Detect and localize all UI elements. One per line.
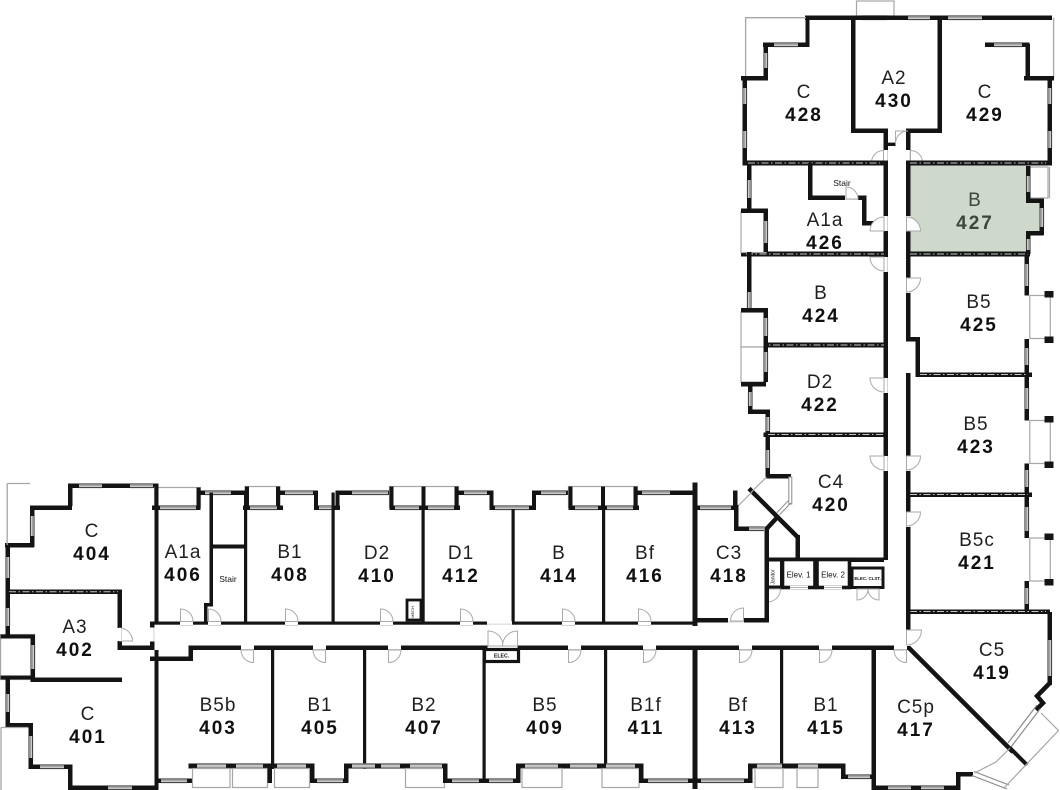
svg-text:413: 413 — [719, 718, 757, 739]
svg-text:Elev. 2: Elev. 2 — [821, 571, 845, 580]
svg-text:402: 402 — [56, 640, 94, 661]
svg-text:D2: D2 — [807, 372, 833, 393]
svg-text:A1a: A1a — [807, 210, 844, 231]
svg-text:426: 426 — [806, 233, 844, 254]
svg-text:Stair: Stair — [833, 178, 851, 188]
svg-text:416: 416 — [626, 566, 664, 587]
svg-text:B1: B1 — [813, 695, 838, 716]
svg-text:C: C — [797, 82, 812, 103]
svg-text:B5b: B5b — [200, 695, 237, 716]
svg-text:422: 422 — [801, 395, 839, 416]
svg-text:411: 411 — [628, 718, 665, 739]
svg-text:401: 401 — [69, 727, 107, 748]
svg-text:B5: B5 — [532, 695, 557, 716]
svg-text:430: 430 — [875, 91, 913, 112]
svg-text:412: 412 — [442, 566, 480, 587]
svg-text:D1: D1 — [448, 543, 474, 564]
svg-text:MECH: MECH — [410, 606, 415, 618]
svg-text:C4: C4 — [818, 472, 844, 493]
svg-text:419: 419 — [973, 663, 1011, 684]
svg-text:429: 429 — [966, 105, 1004, 126]
svg-text:B: B — [814, 283, 828, 304]
svg-text:407: 407 — [405, 718, 443, 739]
svg-text:B: B — [552, 543, 566, 564]
svg-text:424: 424 — [802, 306, 840, 327]
svg-text:414: 414 — [540, 566, 578, 587]
svg-text:D2: D2 — [364, 543, 390, 564]
svg-text:C5p: C5p — [897, 697, 935, 718]
svg-text:403: 403 — [199, 718, 237, 739]
svg-text:B2: B2 — [411, 695, 436, 716]
svg-text:A2: A2 — [881, 68, 906, 89]
svg-text:Elev. 1: Elev. 1 — [787, 571, 811, 580]
svg-text:B1: B1 — [277, 542, 302, 563]
svg-text:410: 410 — [358, 566, 396, 587]
svg-text:415: 415 — [807, 718, 845, 739]
svg-text:A3: A3 — [62, 617, 87, 638]
svg-text:428: 428 — [785, 105, 823, 126]
svg-text:425: 425 — [960, 315, 998, 336]
svg-text:C5: C5 — [979, 640, 1005, 661]
svg-text:408: 408 — [271, 565, 309, 586]
svg-text:Stair: Stair — [219, 574, 237, 584]
svg-text:Janitor: Janitor — [771, 569, 777, 584]
svg-text:C: C — [978, 82, 993, 103]
svg-text:ELEC. CLST.: ELEC. CLST. — [854, 576, 880, 581]
svg-text:405: 405 — [301, 718, 339, 739]
svg-text:C: C — [85, 521, 100, 542]
svg-text:B1f: B1f — [630, 695, 662, 716]
svg-text:Bf: Bf — [728, 695, 748, 716]
svg-text:C: C — [81, 704, 96, 725]
svg-text:421: 421 — [958, 553, 996, 574]
svg-text:417: 417 — [897, 720, 935, 741]
svg-text:423: 423 — [957, 437, 995, 458]
svg-text:B1: B1 — [307, 695, 332, 716]
svg-text:427: 427 — [956, 213, 994, 234]
svg-text:404: 404 — [73, 544, 111, 565]
svg-text:406: 406 — [164, 565, 202, 586]
svg-text:Bf: Bf — [635, 543, 655, 564]
svg-text:A1a: A1a — [165, 542, 202, 563]
svg-text:C3: C3 — [716, 543, 742, 564]
svg-text:ELEC.: ELEC. — [494, 654, 510, 660]
svg-text:B5c: B5c — [959, 530, 995, 551]
svg-text:409: 409 — [526, 718, 564, 739]
svg-text:418: 418 — [710, 566, 748, 587]
svg-text:B: B — [968, 190, 982, 211]
svg-text:B5: B5 — [966, 292, 991, 313]
svg-text:B5: B5 — [963, 414, 988, 435]
svg-text:420: 420 — [812, 495, 850, 516]
